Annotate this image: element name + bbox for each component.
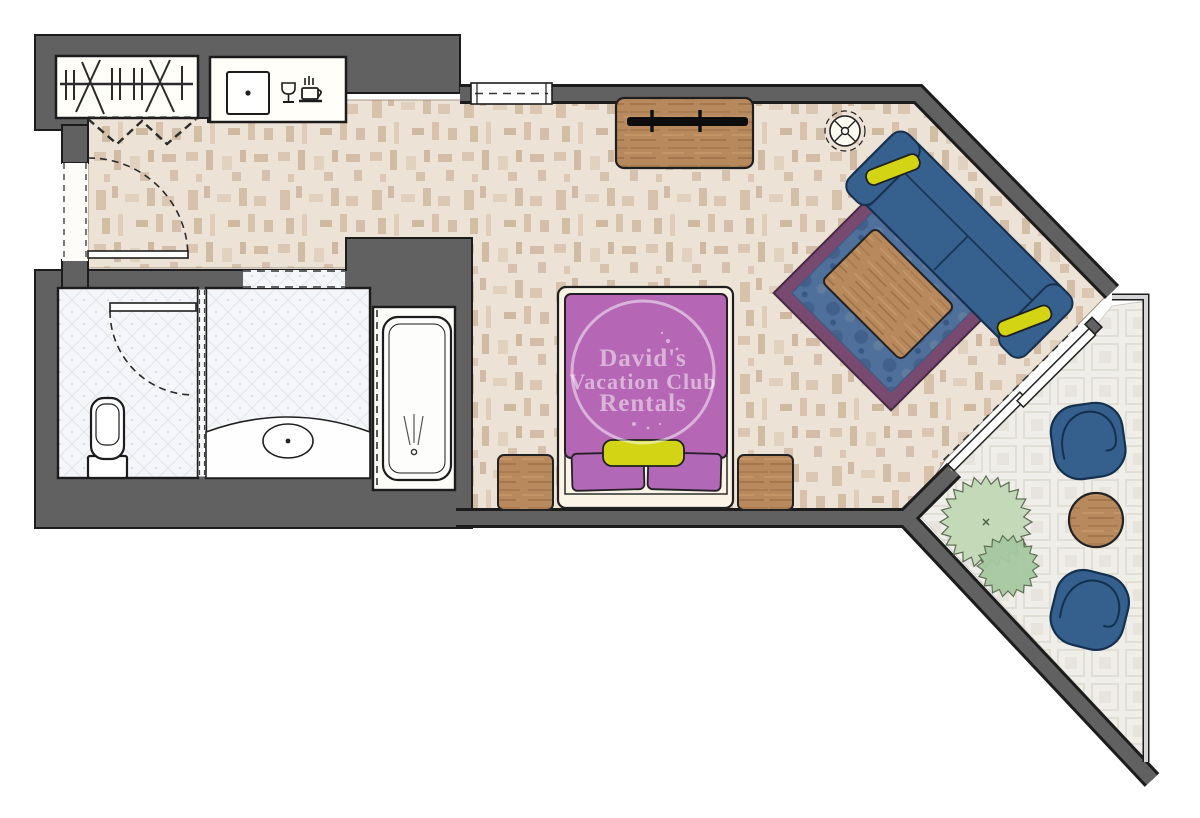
floor-plan: David's Vacation Club Rentals bbox=[0, 0, 1200, 818]
bathroom-pocket-gap bbox=[199, 290, 206, 478]
sink-icon bbox=[227, 72, 269, 114]
balcony-chair bbox=[1047, 399, 1129, 482]
balcony-table bbox=[1069, 493, 1123, 547]
nightstand-right bbox=[738, 455, 793, 510]
vanity-counter bbox=[206, 417, 370, 478]
toilet-door-leaf bbox=[110, 303, 196, 311]
toilet-icon bbox=[88, 398, 127, 478]
bathroom-opening bbox=[243, 270, 345, 288]
watermark-line3: Rentals bbox=[599, 390, 687, 417]
window bbox=[471, 83, 552, 104]
nightstand-left bbox=[498, 455, 553, 510]
bathtub-icon bbox=[383, 317, 451, 480]
bathtub-room bbox=[373, 307, 455, 490]
toilet-room bbox=[58, 288, 198, 478]
kitchenette bbox=[210, 57, 346, 122]
entry-door-leaf bbox=[88, 251, 188, 258]
tv-console bbox=[616, 98, 753, 168]
watermark-line1: David's bbox=[599, 345, 687, 372]
floor-plan-svg: David's Vacation Club Rentals bbox=[0, 0, 1200, 818]
